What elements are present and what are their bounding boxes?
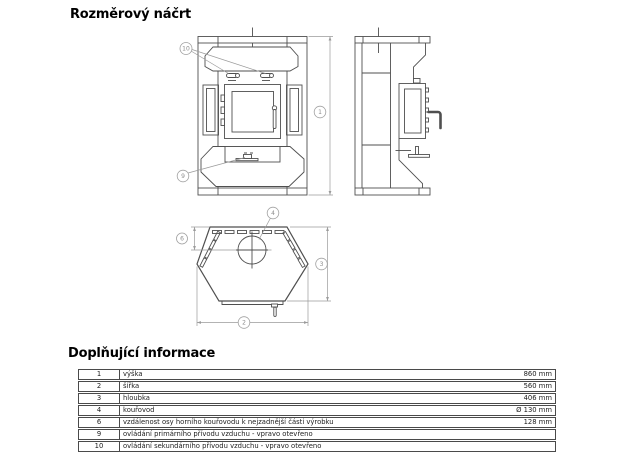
row-label: šířka xyxy=(120,381,485,392)
info-table: 1 výška 860 mm 2 šířka 560 mm 3 hloubka … xyxy=(78,368,556,453)
row-label: ovládání primárního přívodu vzduchu - vp… xyxy=(120,429,485,440)
row-number: 2 xyxy=(78,381,120,392)
air-control-left xyxy=(227,74,240,81)
row-number: 4 xyxy=(78,405,120,416)
svg-text:9: 9 xyxy=(181,173,185,180)
svg-text:1: 1 xyxy=(318,109,322,116)
stove-door-side xyxy=(399,84,441,139)
door-handle xyxy=(273,110,276,129)
stove-door xyxy=(221,85,281,139)
top-view xyxy=(191,227,308,317)
row-label: ovládání sekundárního přívodu vzduchu - … xyxy=(120,441,485,452)
ash-drawer xyxy=(225,147,280,163)
svg-text:6: 6 xyxy=(180,236,184,243)
row-value: 860 mm xyxy=(485,369,556,380)
table-row: 9 ovládání primárního přívodu vzduchu - … xyxy=(78,429,556,440)
row-label: vzdálenost osy horního kouřovodu k nejza… xyxy=(120,417,485,428)
front-view xyxy=(198,28,307,196)
row-number: 10 xyxy=(78,441,120,452)
row-value: 560 mm xyxy=(485,381,556,392)
row-label: kouřovod xyxy=(120,405,485,416)
row-value: 406 mm xyxy=(485,393,556,404)
dimension-height: 1 xyxy=(309,37,334,196)
table-row: 10 ovládání sekundárního přívodu vzduchu… xyxy=(78,441,556,452)
top-handle xyxy=(274,307,276,317)
svg-text:3: 3 xyxy=(320,261,324,268)
row-value: Ø 130 mm xyxy=(485,405,556,416)
row-number: 3 xyxy=(78,393,120,404)
page: { "page": { "title": "Rozměrový náčrt", … xyxy=(0,0,624,460)
table-row: 6 vzdálenost osy horního kouřovodu k nej… xyxy=(78,417,556,428)
section-title: Doplňující informace xyxy=(68,346,215,361)
svg-text:2: 2 xyxy=(242,320,246,327)
table-row: 3 hloubka 406 mm xyxy=(78,393,556,404)
svg-text:4: 4 xyxy=(271,210,275,217)
table-row: 2 šířka 560 mm xyxy=(78,381,556,392)
air-lever-pin xyxy=(416,147,419,155)
row-number: 9 xyxy=(78,429,120,440)
row-number: 6 xyxy=(78,417,120,428)
table-row: 1 výška 860 mm xyxy=(78,369,556,380)
row-value xyxy=(485,441,556,452)
row-label: výška xyxy=(120,369,485,380)
row-label: hloubka xyxy=(120,393,485,404)
svg-text:10: 10 xyxy=(182,46,190,53)
row-number: 1 xyxy=(78,369,120,380)
row-value: 128 mm xyxy=(485,417,556,428)
side-view xyxy=(355,28,441,196)
door-handle-side xyxy=(429,112,441,128)
row-value xyxy=(485,429,556,440)
air-control-right xyxy=(261,74,274,81)
air-lever xyxy=(409,155,430,158)
info-table-wrap: 1 výška 860 mm 2 šířka 560 mm 3 hloubka … xyxy=(78,368,556,453)
table-row: 4 kouřovod Ø 130 mm xyxy=(78,405,556,416)
